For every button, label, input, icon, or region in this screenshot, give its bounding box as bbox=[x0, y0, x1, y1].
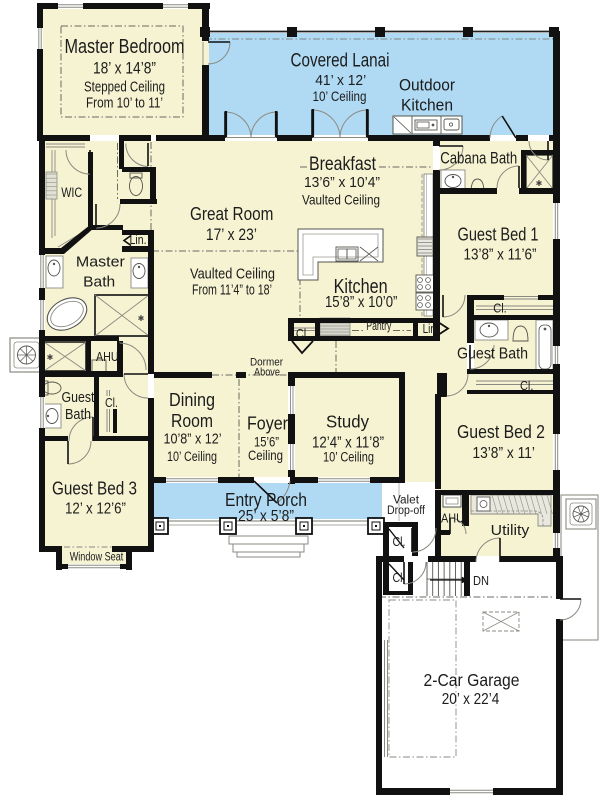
svg-text:DN: DN bbox=[473, 574, 489, 588]
svg-text:Window Seat: Window Seat bbox=[70, 552, 124, 564]
svg-text:Bath: Bath bbox=[65, 406, 91, 423]
svg-text:Guest Bed 2: Guest Bed 2 bbox=[457, 422, 545, 442]
svg-text:Entry Porch: Entry Porch bbox=[225, 490, 307, 510]
svg-text:Cl.: Cl. bbox=[493, 302, 507, 316]
svg-text:Pantry: Pantry bbox=[366, 319, 392, 333]
svg-text:Cl.: Cl. bbox=[393, 571, 406, 585]
svg-text:WIC: WIC bbox=[61, 185, 82, 200]
svg-text:Dining: Dining bbox=[169, 390, 215, 410]
svg-text:15’8” x 10’0”: 15’8” x 10’0” bbox=[325, 294, 398, 311]
svg-text:Foyer: Foyer bbox=[247, 414, 288, 434]
svg-text:13’8” x 11’6”: 13’8” x 11’6” bbox=[464, 247, 537, 264]
svg-text:Stepped Ceiling: Stepped Ceiling bbox=[84, 80, 165, 96]
svg-text:10’ Ceiling: 10’ Ceiling bbox=[323, 450, 374, 465]
svg-text:Cl.: Cl. bbox=[393, 535, 406, 549]
svg-text:Cabana Bath: Cabana Bath bbox=[440, 149, 517, 168]
svg-text:Guest: Guest bbox=[62, 389, 96, 406]
svg-text:✱: ✱ bbox=[536, 179, 543, 188]
svg-text:Guest Bath: Guest Bath bbox=[457, 346, 528, 363]
svg-text:Outdoor: Outdoor bbox=[399, 76, 455, 95]
svg-text:Lin.: Lin. bbox=[423, 322, 439, 336]
svg-text:Kitchen: Kitchen bbox=[401, 96, 453, 115]
svg-text:Vaulted Ceiling: Vaulted Ceiling bbox=[302, 192, 380, 208]
svg-text:Vaulted Ceiling: Vaulted Ceiling bbox=[190, 266, 275, 283]
svg-text:17’ x 23’: 17’ x 23’ bbox=[206, 226, 257, 244]
svg-text:Study: Study bbox=[326, 412, 369, 432]
svg-text:✱: ✱ bbox=[138, 314, 145, 323]
svg-text:25’ x 5’8”: 25’ x 5’8” bbox=[238, 508, 294, 525]
svg-text:20’ x 22’4: 20’ x 22’4 bbox=[442, 691, 500, 708]
svg-text:Guest Bed 1: Guest Bed 1 bbox=[458, 225, 539, 245]
svg-text:AHU: AHU bbox=[96, 349, 119, 364]
svg-text:Ceiling: Ceiling bbox=[248, 447, 283, 463]
svg-text:12’ x 12’6”: 12’ x 12’6” bbox=[65, 501, 126, 518]
svg-text:10’8” x 12’: 10’8” x 12’ bbox=[164, 431, 222, 448]
svg-text:Bath: Bath bbox=[83, 274, 115, 291]
svg-text:Lin.: Lin. bbox=[130, 232, 147, 247]
svg-text:Room: Room bbox=[171, 411, 213, 431]
svg-text:Drop-off: Drop-off bbox=[387, 505, 426, 517]
svg-text:2-Car Garage: 2-Car Garage bbox=[424, 670, 520, 690]
svg-text:Master Bedroom: Master Bedroom bbox=[65, 36, 185, 58]
svg-text:10’ Ceiling: 10’ Ceiling bbox=[167, 449, 217, 464]
svg-text:Above: Above bbox=[254, 367, 280, 379]
svg-text:13’8” x 11’: 13’8” x 11’ bbox=[472, 445, 535, 462]
svg-text:From 10’ to 11’: From 10’ to 11’ bbox=[86, 96, 163, 112]
svg-text:From 11’4” to 18’: From 11’4” to 18’ bbox=[192, 283, 272, 299]
svg-text:18’ x 14’8”: 18’ x 14’8” bbox=[93, 60, 156, 78]
svg-text:Utility: Utility bbox=[491, 522, 530, 539]
svg-text:Cl.: Cl. bbox=[105, 395, 118, 410]
svg-text:13’6” x 10’4”: 13’6” x 10’4” bbox=[304, 174, 380, 191]
svg-text:AHU: AHU bbox=[441, 511, 464, 526]
svg-text:10’ Ceiling: 10’ Ceiling bbox=[313, 88, 367, 104]
svg-text:✱: ✱ bbox=[47, 353, 54, 362]
svg-text:Breakfast: Breakfast bbox=[309, 154, 377, 175]
svg-text:Covered Lanai: Covered Lanai bbox=[291, 51, 390, 72]
svg-text:Great Room: Great Room bbox=[190, 204, 274, 224]
svg-text:Master: Master bbox=[76, 254, 125, 271]
svg-text:Guest Bed 3: Guest Bed 3 bbox=[52, 479, 137, 499]
svg-text:Cl.: Cl. bbox=[296, 327, 309, 341]
svg-text:Cl.: Cl. bbox=[520, 379, 534, 393]
svg-text:41’ x 12’: 41’ x 12’ bbox=[315, 72, 366, 89]
